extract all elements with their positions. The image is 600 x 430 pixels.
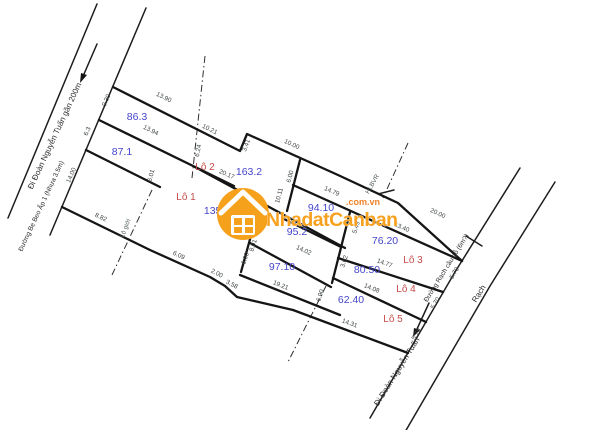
window-pane xyxy=(234,227,242,233)
window-pane xyxy=(245,227,253,233)
dimension-label: 3.41 xyxy=(241,138,252,153)
corridor-tick xyxy=(378,190,394,194)
cadastral-plat-page: 9.3013.9010.213.4110.0013.946.36.2414.00… xyxy=(0,0,600,430)
watermark: NhadatCanban .com.vn xyxy=(217,188,398,240)
area-label: 80.50 xyxy=(354,264,380,276)
window-pane xyxy=(245,218,253,225)
dimension-label: 6.90 xyxy=(315,288,326,302)
window-pane xyxy=(234,218,242,225)
right-road xyxy=(370,168,555,430)
area-label: 163.2 xyxy=(236,166,262,178)
area-label: 62.40 xyxy=(338,294,364,306)
plat-labels: 9.3013.9010.213.4110.0013.946.36.2414.00… xyxy=(15,81,488,407)
corridor-label: Lộ giới xyxy=(119,218,133,239)
dimension-label: 6.3 xyxy=(83,126,93,137)
dimension-label: 14.00 xyxy=(65,166,78,184)
canal-corridor-dash-line xyxy=(383,143,408,198)
dimension-label: 10.00 xyxy=(283,138,301,151)
setback-dash-line xyxy=(112,190,152,275)
bottom-direction-arrow xyxy=(417,303,429,329)
lot-name-label: Lô 1 xyxy=(176,192,196,203)
dimension-label: 6.01 xyxy=(147,168,157,182)
dimension-label: 9.30 xyxy=(101,93,113,108)
dimension-label: 6.24 xyxy=(194,143,204,157)
dimension-label: 8.82 xyxy=(94,212,109,224)
lot-name-label: Lô 3 xyxy=(403,255,423,266)
dimension-label: 10.21 xyxy=(201,123,219,136)
dimension-label: 6.00 xyxy=(240,251,251,265)
setback-dash-line xyxy=(192,56,205,178)
lot-name-label: Lô 2 xyxy=(195,162,215,173)
area-label: 87.1 xyxy=(112,146,133,158)
dimension-label: 14.02 xyxy=(295,244,313,257)
left-road-direction-arrow xyxy=(84,44,97,74)
area-label: 76.20 xyxy=(372,235,398,247)
left-road xyxy=(8,4,146,235)
area-label: 97.10 xyxy=(269,261,295,273)
watermark-brand-text: NhadatCanban xyxy=(266,209,398,231)
road-label: Đường Rạch cầu gỗ (6m?) xyxy=(421,232,470,304)
dimension-label: 13.90 xyxy=(155,91,173,104)
arrow-head-icon xyxy=(80,73,87,83)
dimension-label: 13.94 xyxy=(142,124,160,137)
dimension-label: 14.79 xyxy=(323,185,341,198)
dimension-label: 20.00 xyxy=(429,207,447,220)
watermark-domain-text: .com.vn xyxy=(346,197,380,207)
road-label: Đi Đoàn Nguyễn Tuấn xyxy=(372,336,421,408)
lot-name-label: Lô 4 xyxy=(396,284,416,295)
plat-drawing: 9.3013.9010.213.4110.0013.946.36.2414.00… xyxy=(0,0,600,430)
area-label: 86.3 xyxy=(127,111,148,123)
lot-name-label: Lô 5 xyxy=(383,314,403,325)
dimension-label: 10.11 xyxy=(274,187,285,204)
